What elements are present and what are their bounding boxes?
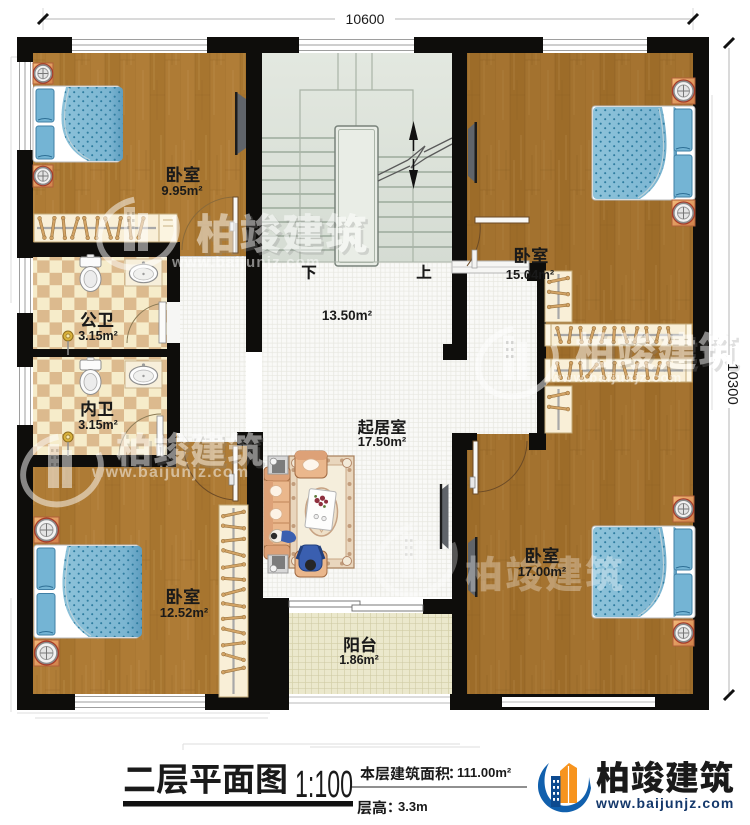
svg-text:15.04m²: 15.04m² [506,267,555,282]
svg-text:www.baijunjz.com: www.baijunjz.com [171,254,321,271]
svg-text:www.baijunjz.com: www.baijunjz.com [595,795,734,811]
svg-text:10600: 10600 [346,11,385,27]
svg-text:3.3m: 3.3m [398,799,428,814]
svg-text:www.baijunjz.com: www.baijunjz.com [91,464,249,481]
svg-text:1:100: 1:100 [295,764,353,806]
svg-text:12.52m²: 12.52m² [160,605,209,620]
svg-text:17.50m²: 17.50m² [358,434,407,449]
svg-text:111.00m²: 111.00m² [457,765,512,780]
svg-text:1.86m²: 1.86m² [339,653,379,667]
svg-text:10300: 10300 [724,363,741,405]
svg-text:13.50m²: 13.50m² [322,308,373,323]
svg-text:9.95m²: 9.95m² [161,183,203,198]
svg-text:17.00m²: 17.00m² [518,564,567,579]
svg-text:3.15m²: 3.15m² [78,329,118,343]
svg-text:www.baijunjz.com: www.baijunjz.com [550,370,682,385]
svg-text:3.15m²: 3.15m² [78,418,118,432]
